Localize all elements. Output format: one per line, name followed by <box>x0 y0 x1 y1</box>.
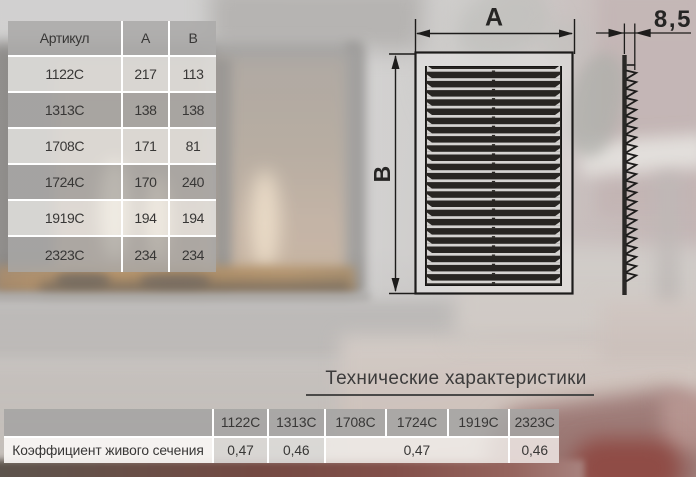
svg-text:8,5: 8,5 <box>654 6 692 33</box>
svg-text:B: B <box>369 166 395 183</box>
svg-text:A: A <box>485 4 503 32</box>
